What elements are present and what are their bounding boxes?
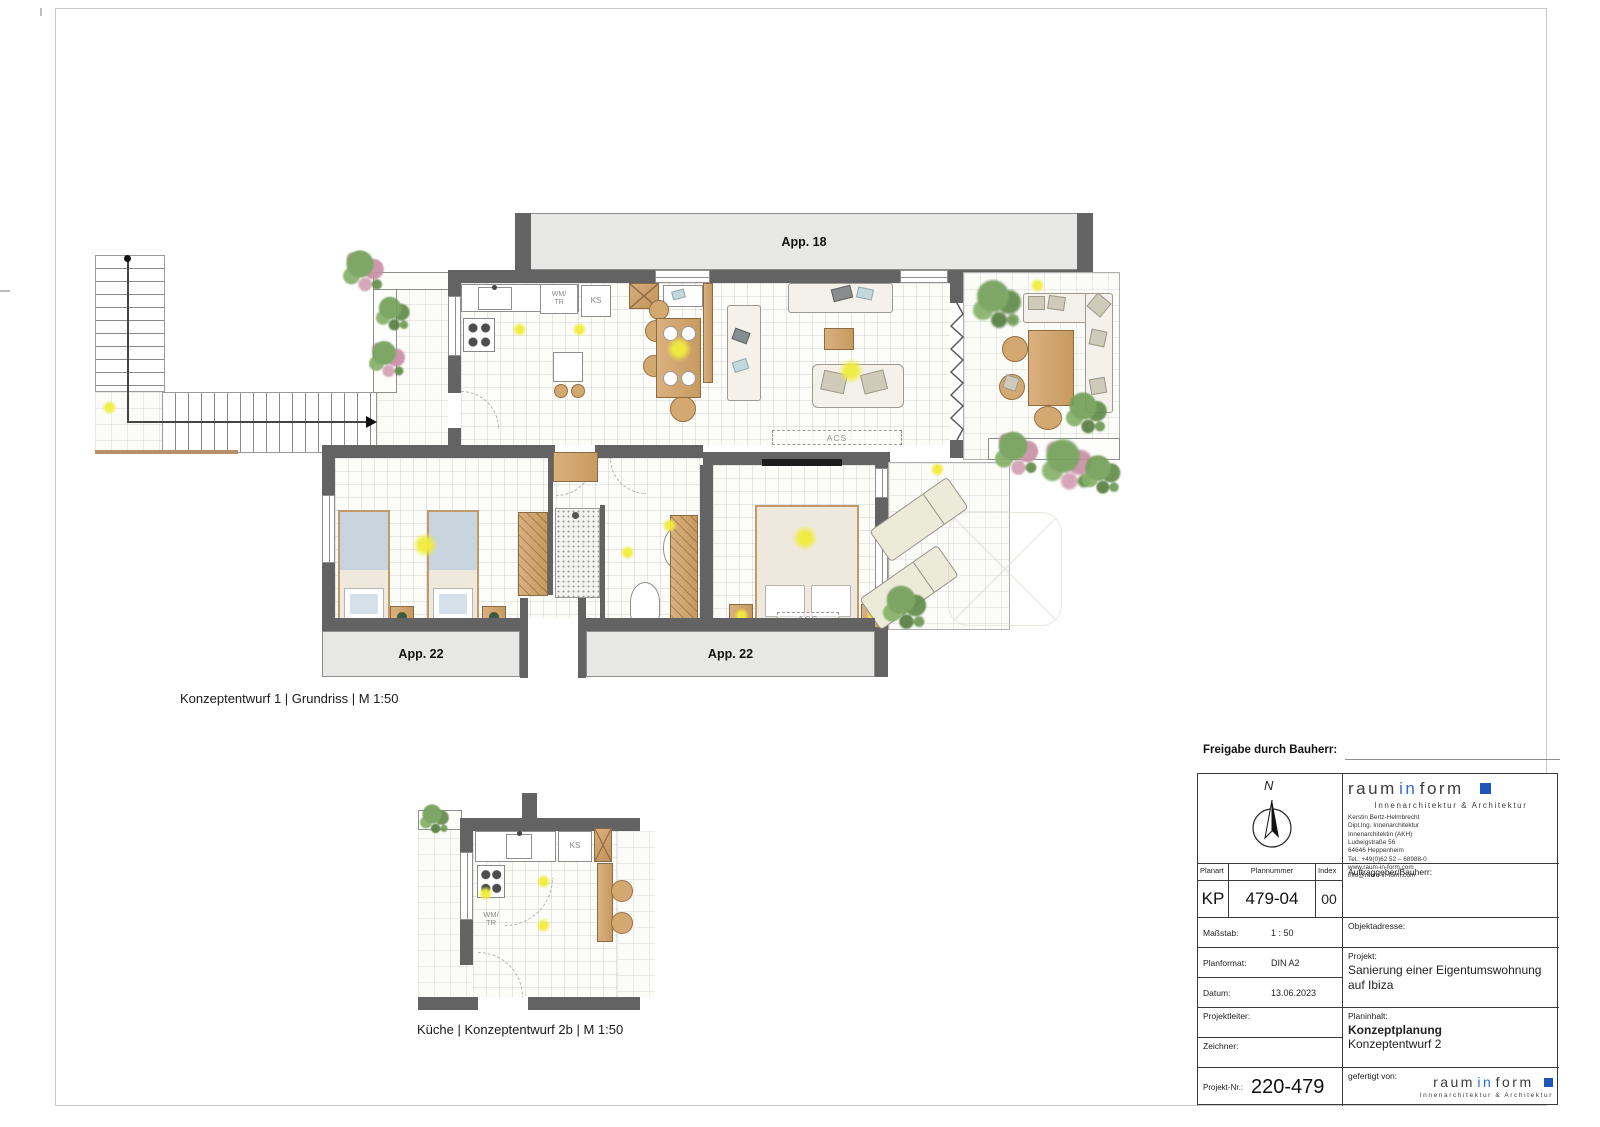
walk-line [127, 259, 129, 422]
light-point [662, 518, 677, 533]
date-value: 13.06.2023 [1271, 988, 1316, 998]
logo-word-form: form [1420, 779, 1464, 798]
bench-cushion [1028, 296, 1045, 310]
brand-logo: raum in form [1348, 779, 1554, 799]
plate [663, 371, 678, 386]
format-value: DIN A2 [1271, 958, 1300, 968]
window [655, 270, 710, 283]
window [900, 270, 948, 283]
project-cell: Projekt: Sanierung einer Eigentumswohnun… [1343, 948, 1559, 1008]
light-point [838, 358, 864, 384]
format-label: Planformat: [1203, 958, 1271, 968]
object-address-cell: Objektadresse: [1343, 918, 1559, 948]
bar-counter [597, 863, 613, 942]
bar-stool [611, 912, 633, 934]
apartment-wall [950, 283, 963, 303]
fold-mark [0, 290, 10, 292]
terrace-plant [887, 586, 916, 615]
apartment-wall [950, 440, 963, 458]
title-block: N raum in form Innenarchitektur & Archit… [1197, 773, 1558, 1105]
kitchen-wall [460, 818, 473, 852]
light-point [478, 886, 493, 901]
fridge-label: KS [591, 297, 602, 306]
light-point [666, 336, 692, 362]
shelf [703, 283, 713, 383]
scale-label: Maßstab: [1203, 928, 1271, 938]
toilet [630, 582, 660, 622]
wardrobe [670, 515, 698, 627]
mattress [340, 512, 388, 570]
acs-living-label: ACS [827, 433, 847, 443]
scale-cell: Maßstab: 1 : 50 [1198, 918, 1343, 948]
made-by-cell: gefertigt von: raum in form Innenarchite… [1343, 1068, 1559, 1106]
plate [681, 371, 696, 386]
entry-mat [95, 450, 238, 454]
neighbor-bottom-right-label: App. 22 [586, 631, 875, 677]
neighbor-bottom-left-label: App. 22 [322, 631, 520, 677]
apartment-wall [322, 618, 520, 631]
light-point [412, 532, 438, 558]
kitchen-sink [506, 834, 532, 859]
walk-arrowhead [366, 416, 377, 428]
apartment-wall [595, 445, 703, 458]
window [875, 468, 888, 498]
light-point [572, 322, 587, 337]
small-table [553, 352, 583, 382]
kitchen-wall [522, 793, 537, 820]
chaise-sofa [727, 305, 761, 401]
faucet [517, 831, 522, 836]
planter-plant [372, 341, 396, 365]
planart-value: KP [1198, 881, 1229, 918]
fold-mark [40, 8, 42, 16]
drawing-sheet: App. 18 [0, 0, 1600, 1127]
walk-start-dot [124, 255, 131, 262]
north-compass-cell: N [1198, 774, 1343, 864]
plan-content-label: Planinhalt: [1348, 1011, 1554, 1021]
logo-square-icon [1480, 783, 1491, 794]
planter-plant [422, 804, 441, 823]
light-point [1030, 278, 1045, 293]
acs-duct-living: ACS [772, 430, 902, 445]
bench-cushion [1089, 329, 1108, 348]
north-compass-icon [1246, 794, 1298, 854]
bed-pillow [344, 588, 384, 620]
draftsman-label: Zeichner: [1203, 1041, 1238, 1051]
coffee-table [824, 328, 854, 350]
light-point [512, 322, 527, 337]
fridge-label: KS [570, 842, 581, 851]
wardrobe [518, 512, 548, 596]
window [460, 852, 473, 920]
project-number-cell: Projekt-Nr.: 220-479 [1198, 1068, 1343, 1106]
project-lead-label: Projektleiter: [1203, 1011, 1250, 1021]
outdoor-table [1028, 330, 1074, 406]
plan-content-value: Konzeptentwurf 2 [1348, 1037, 1554, 1051]
window [448, 296, 461, 356]
stool [571, 384, 585, 398]
address-line: Innenarchitektin (AKH) [1348, 831, 1554, 839]
single-bed [427, 510, 479, 628]
kitchen-wall [528, 997, 640, 1010]
dining-chair [649, 300, 669, 320]
logo-cell: raum in form Innenarchitektur & Architek… [1343, 774, 1559, 864]
stairwell-wall [578, 598, 586, 678]
terrace-plant [977, 280, 1009, 312]
client-label: Auftraggeber/Bauherr: [1348, 867, 1432, 877]
project-value: Sanierung einer Eigentumswohnung auf Ibi… [1348, 963, 1554, 993]
kitchen-wall [418, 997, 478, 1010]
apartment-wall [322, 445, 555, 458]
hall-cabinet [553, 452, 598, 482]
logo-word-form: form [1496, 1074, 1534, 1090]
planter-plant [1085, 455, 1111, 481]
logo-square-icon [1544, 1078, 1553, 1087]
date-label: Datum: [1203, 988, 1271, 998]
logo-word-raum: raum [1433, 1074, 1475, 1090]
tv-panel [762, 459, 842, 466]
apartment-wall [586, 618, 875, 631]
north-label: N [1264, 778, 1273, 793]
project-number-value: 220-479 [1251, 1076, 1324, 1099]
stairwell-wall [520, 598, 528, 678]
planart-header: Planart [1198, 864, 1229, 881]
address-line: Kerstin Bertz-Helmbrecht [1348, 814, 1554, 822]
address-line: Ludwigstraße 56 [1348, 839, 1554, 847]
bench-cushion [1047, 295, 1066, 311]
shower-floor [555, 508, 600, 598]
approval-label: Freigabe durch Bauherr: [1203, 744, 1337, 756]
format-cell: Planformat: DIN A2 [1198, 948, 1343, 978]
planter-box [373, 272, 460, 290]
address-line: 64646 Heppenheim [1348, 847, 1554, 855]
logo-word-raum: raum [1348, 779, 1397, 798]
project-lead-cell: Projektleiter: [1198, 1008, 1343, 1038]
light-point [536, 874, 551, 889]
fridge-box: KS [558, 831, 592, 862]
partition-wall [548, 458, 553, 595]
date-cell: Datum: 13.06.2023 [1198, 978, 1343, 1008]
bar-stool [611, 880, 633, 902]
wood-cabinet [594, 828, 612, 862]
light-point [536, 918, 551, 933]
apartment-wall [875, 631, 888, 677]
approval-signature-line [1345, 759, 1560, 760]
planter-box [373, 272, 397, 393]
folding-door [950, 303, 964, 440]
light-point [620, 545, 635, 560]
light-point [930, 462, 945, 477]
kitchen-wall [460, 818, 640, 831]
address-line: Tel.: +49(0)62 52 – 68988-0 [1348, 856, 1554, 864]
outdoor-chair [1002, 336, 1028, 362]
outdoor-chair [1034, 406, 1062, 430]
washer-label-line2: TR [486, 919, 496, 927]
parasol [948, 512, 1062, 626]
logo-word-in: in [1477, 1074, 1493, 1090]
logo-subtitle: Innenarchitektur & Architektur [1348, 801, 1554, 810]
light-point [792, 525, 818, 551]
made-by-label: gefertigt von: [1348, 1071, 1397, 1081]
kitchen-sink [478, 287, 512, 310]
bench-cushion [1089, 377, 1108, 396]
washer-dryer-box: WM/ TR [540, 284, 578, 314]
draftsman-cell: Zeichner: [1198, 1038, 1343, 1068]
light-point [102, 400, 117, 415]
caption-plan2: Küche | Konzeptentwurf 2b | M 1:50 [417, 1022, 623, 1037]
walk-line [127, 421, 369, 423]
plannummer-value: 479-04 [1229, 881, 1316, 918]
scale-value: 1 : 50 [1271, 928, 1294, 938]
brand-logo-small: raum in form Innenarchitektur & Architek… [1420, 1074, 1553, 1099]
washer-label-line1: WM/ [552, 291, 566, 299]
kitchen-wall [460, 920, 473, 965]
partition-wall [600, 505, 605, 630]
address-line: Dipl.Ing. Innenarchitektur [1348, 822, 1554, 830]
plan-content-cell: Planinhalt: Konzeptplanung Konzeptentwur… [1343, 1008, 1559, 1068]
single-bed [338, 510, 390, 628]
caption-plan1: Konzeptentwurf 1 | Grundriss | M 1:50 [180, 691, 398, 706]
apartment-wall [448, 356, 461, 393]
dining-chair [670, 396, 696, 422]
index-value: 00 [1316, 881, 1343, 918]
planter-plant [346, 250, 373, 277]
project-number-label: Projekt-Nr.: [1203, 1083, 1251, 1092]
washer-dryer-box: WM/ TR [473, 898, 509, 940]
project-label: Projekt: [1348, 951, 1554, 961]
object-address-label: Objektadresse: [1348, 921, 1405, 931]
stairs-horizontal [162, 392, 377, 453]
planter-plant [379, 297, 401, 319]
planter-plant [1046, 439, 1080, 473]
cooktop [463, 318, 495, 352]
fridge-box: KS [581, 285, 611, 317]
stool [554, 384, 568, 398]
bed-pillow [433, 588, 473, 620]
shower-head [572, 512, 579, 519]
logo-subtitle-small: Innenarchitektur & Architektur [1420, 1092, 1553, 1099]
double-bed [755, 505, 859, 629]
terrace-plant [1069, 392, 1096, 419]
plannummer-header: Plannummer [1229, 864, 1316, 881]
plan-content-value-bold: Konzeptplanung [1348, 1023, 1554, 1037]
stairs-vertical [95, 255, 165, 392]
partition-wall [700, 465, 713, 632]
window [322, 495, 335, 563]
client-cell: Auftraggeber/Bauherr: [1343, 864, 1559, 918]
index-header: Index [1316, 864, 1343, 881]
apartment-wall [448, 283, 461, 296]
planter-plant [999, 432, 1028, 461]
logo-word-in: in [1399, 779, 1417, 798]
faucet [492, 285, 497, 290]
neighbor-top-label: App. 18 [515, 213, 1093, 270]
washer-label-line2: TR [554, 299, 563, 307]
